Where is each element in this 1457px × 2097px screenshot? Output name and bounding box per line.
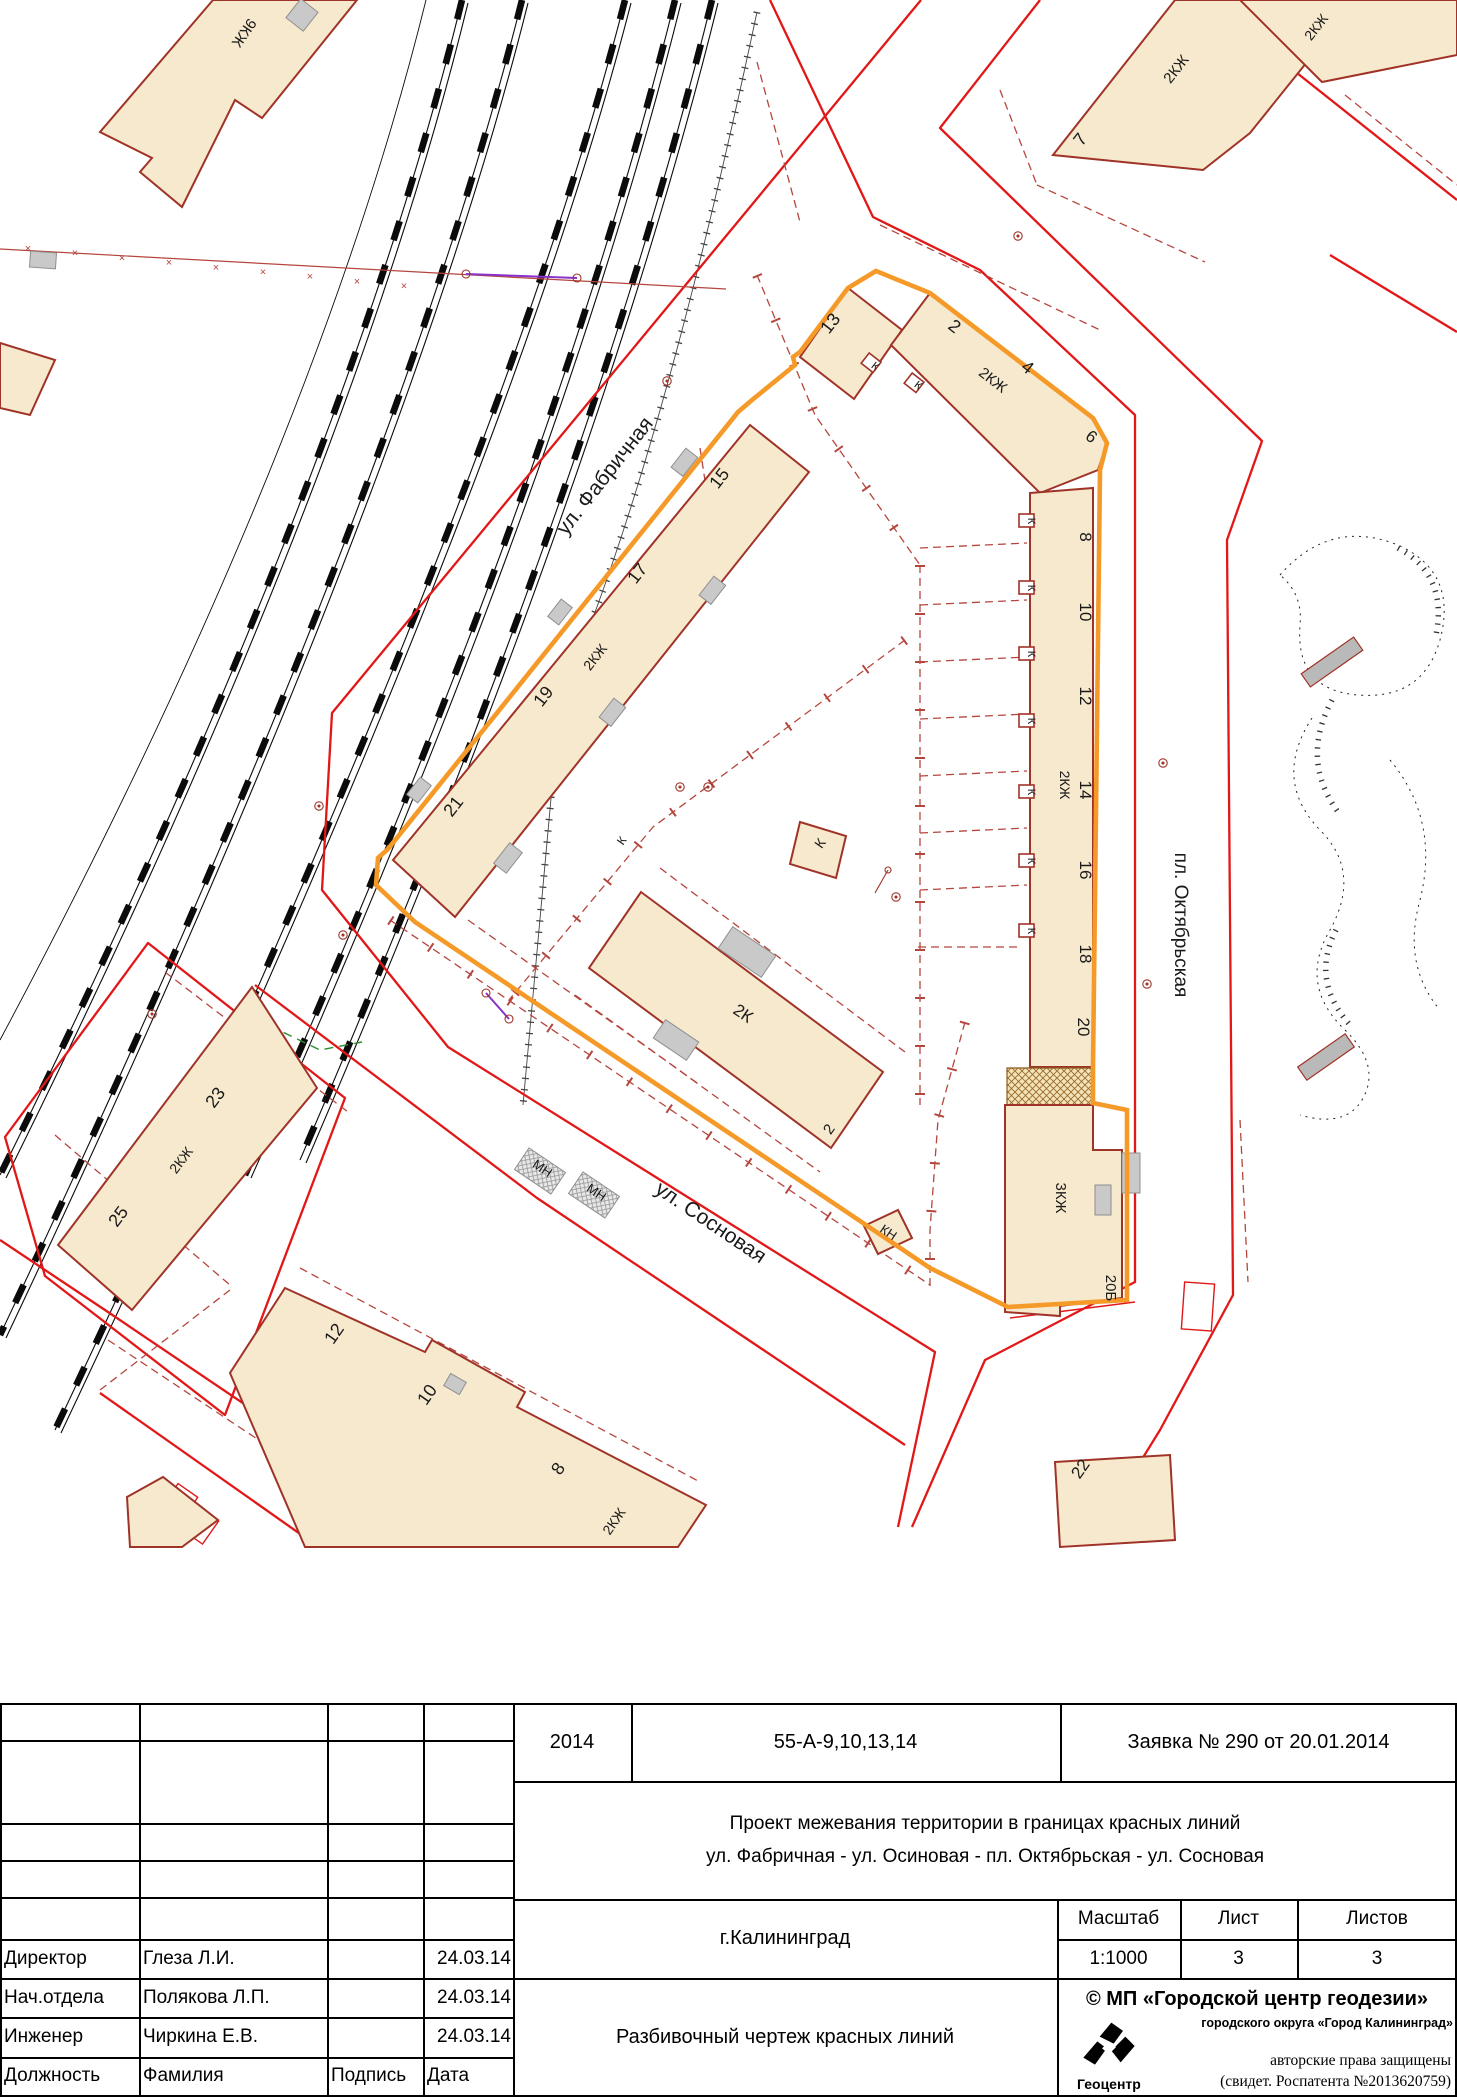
sig-date: 24.03.14 (423, 1939, 511, 1978)
sig-name: Полякова Л.П. (143, 1978, 325, 2017)
sheets-value: 3 (1297, 1939, 1457, 1978)
map-label: 8 (1076, 532, 1095, 541)
title-block: 2014 55-А-9,10,13,14 Заявка № 290 от 20.… (0, 1703, 1457, 2097)
map-label: К (1025, 718, 1037, 725)
map-label: К (1025, 651, 1037, 658)
year-cell: 2014 (513, 1703, 631, 1781)
hatched-strip (1007, 1068, 1093, 1105)
building-fragment (127, 1477, 218, 1547)
scale-value: 1:1000 (1057, 1939, 1180, 1978)
fence-x-mark: × (166, 257, 172, 269)
map-label: 2КЖ (1057, 771, 1073, 800)
fence-x-mark: × (307, 271, 313, 283)
map-label: 18 (1076, 945, 1095, 964)
scale-label: Масштаб (1057, 1899, 1180, 1939)
sig-name: Глеза Л.И. (143, 1939, 325, 1978)
sheet-label: Лист (1180, 1899, 1297, 1939)
sheet: { "map": { "colors": { "red": "#e21717",… (0, 0, 1457, 2097)
stamp-rights: авторские права защищены (1270, 2052, 1451, 2070)
map-label: К (614, 834, 629, 848)
fence-x-mark: × (354, 276, 360, 288)
map-label: 14 (1076, 781, 1095, 800)
red-lines (0, 0, 1457, 1545)
fence-x-mark: × (25, 243, 31, 255)
building-9kzh (100, 0, 357, 207)
header-sign: Подпись (331, 2057, 423, 2095)
sig-date: 24.03.14 (423, 1978, 511, 2017)
project-line2: ул. Фабричная - ул. Осиновая - пл. Октяб… (706, 1845, 1264, 1869)
sig-role: Нач.отдела (4, 1978, 137, 2017)
building-13 (800, 288, 902, 399)
map-label: 16 (1076, 861, 1095, 880)
map-label: 3КЖ (1052, 1183, 1069, 1214)
map-label: К (1025, 789, 1037, 796)
map-label: 20Б (1102, 1275, 1119, 1302)
building-8-12-bottom (230, 1288, 706, 1547)
fence-x-mark: × (260, 267, 266, 279)
sheet-value: 3 (1180, 1939, 1297, 1978)
fence-x-mark: × (72, 248, 78, 260)
header-name: Фамилия (143, 2057, 325, 2095)
sheets-label: Листов (1297, 1899, 1457, 1939)
map-label: 20 (1074, 1018, 1093, 1037)
map-label: К (1025, 585, 1037, 592)
map-label: пл. Октябрьская (1170, 853, 1191, 998)
geocentre-logo-text: Геоцентр (1077, 2076, 1141, 2092)
map-label: 12 (1076, 687, 1095, 706)
header-date: Дата (427, 2057, 511, 2095)
drawing-type-cell: Разбивочный чертеж красных линий (513, 1978, 1057, 2097)
geocentre-logo-icon (1081, 2020, 1137, 2072)
stamp-cert: (свидет. Роспатента №2013620759) (1220, 2073, 1451, 2091)
sig-role: Директор (4, 1939, 137, 1978)
sig-role: Инженер (4, 2017, 137, 2057)
stamp-org2: городского округа «Город Калининград» (1201, 2016, 1453, 2030)
map-canvas: ××××××××× (0, 0, 1457, 1703)
map-label: К (1025, 928, 1037, 935)
project-line1: Проект межевания территории в границах к… (730, 1812, 1241, 1836)
map-label: К (1025, 858, 1037, 865)
copyright-stamp: © МП «Городской центр геодезии» городско… (1059, 1980, 1455, 2095)
terrain-slope (1280, 536, 1444, 1119)
map-label: ул. Сосновая (651, 1177, 770, 1268)
code-cell: 55-А-9,10,13,14 (631, 1703, 1060, 1781)
fence-x-mark: × (401, 281, 407, 293)
fence-x-mark: × (119, 252, 125, 264)
sig-date: 24.03.14 (423, 2017, 511, 2057)
stamp-org: © МП «Городской центр геодезии» (1059, 1988, 1455, 2011)
map-label: 10 (1076, 603, 1095, 622)
project-title-cell: Проект межевания территории в границах к… (513, 1781, 1457, 1899)
sig-name: Чиркина Е.В. (143, 2017, 325, 2057)
building-fragment-left (0, 343, 55, 415)
request-cell: Заявка № 290 от 20.01.2014 (1060, 1703, 1457, 1781)
city-cell: г.Калининград (513, 1899, 1057, 1978)
map-label: К (1025, 518, 1037, 525)
header-role: Должность (4, 2057, 137, 2095)
building-k (790, 822, 846, 878)
fence-x-mark: × (213, 262, 219, 274)
map-label: ул. Фабричная (552, 413, 658, 540)
survey-map: ××××××××× (0, 0, 1457, 1703)
